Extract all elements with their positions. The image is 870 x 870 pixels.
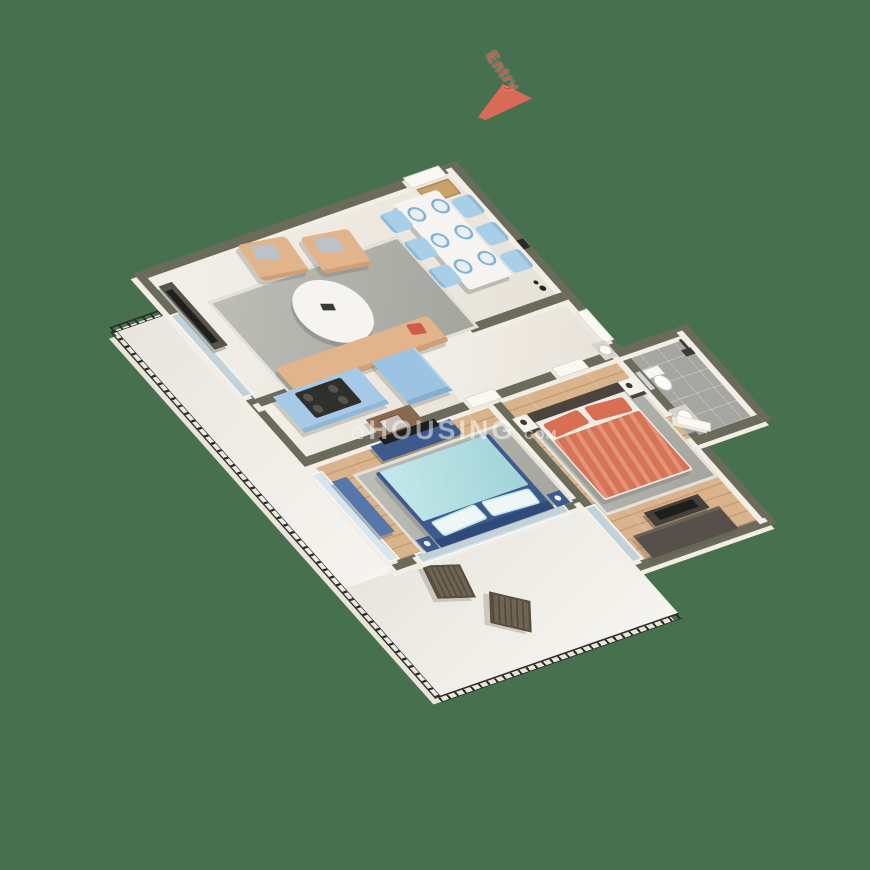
watermark-text: HOUSING: [369, 415, 516, 446]
watermark-suffix: .COM: [520, 427, 558, 442]
coffee-table-decor: [320, 304, 336, 311]
floorplan-scene: Entry ⌂ HOUSING .COM: [0, 0, 870, 870]
housing-watermark: ⌂ HOUSING .COM: [350, 415, 557, 446]
house-icon: ⌂: [350, 418, 365, 446]
